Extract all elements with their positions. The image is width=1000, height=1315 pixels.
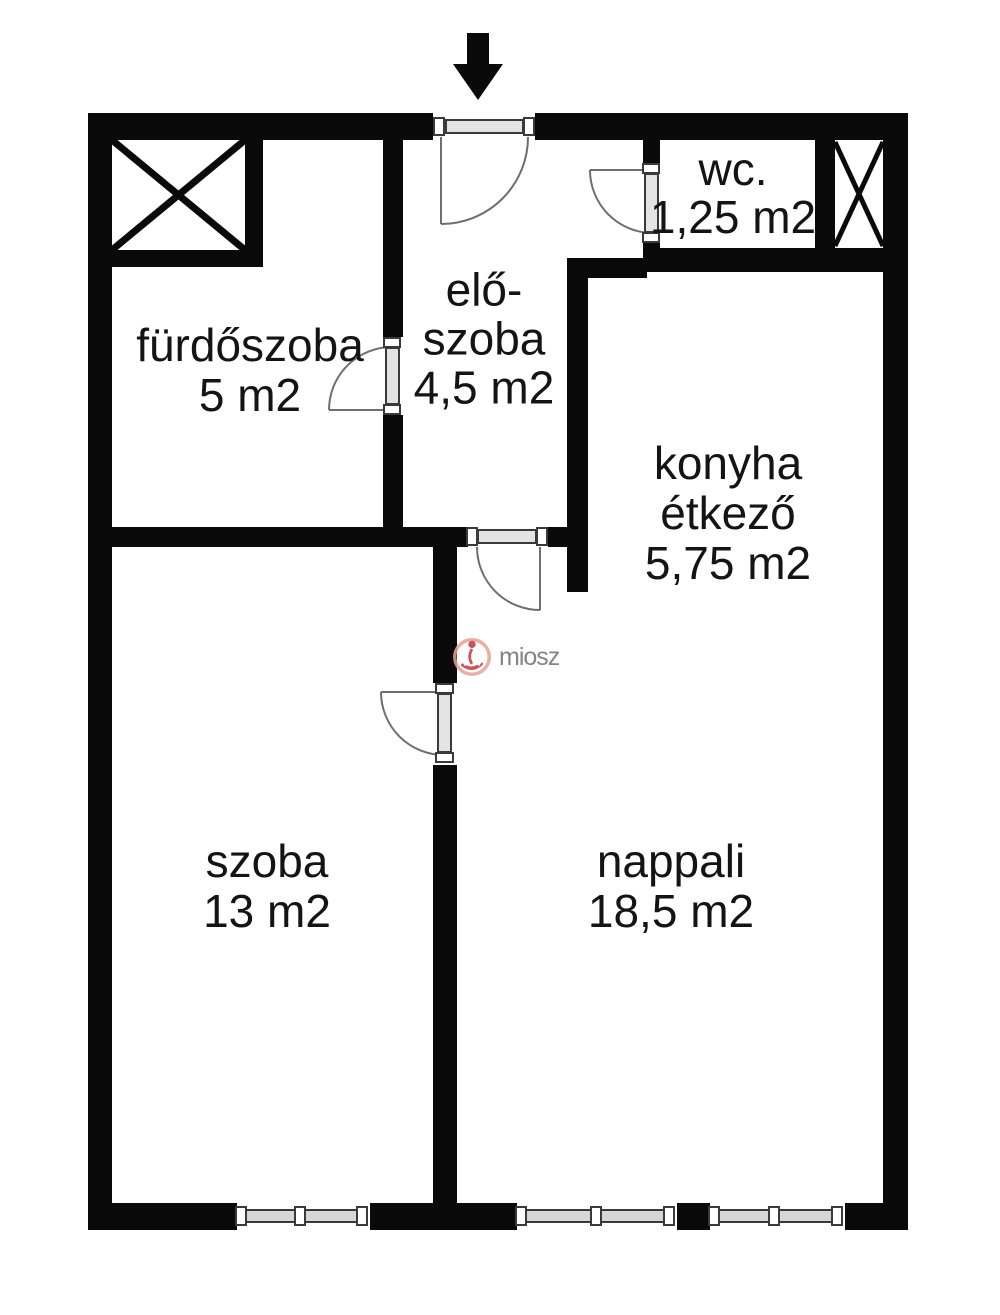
room-label-wc: wc. 1,25 m2	[650, 145, 816, 241]
window-cap	[356, 1206, 368, 1226]
threshold-cap	[433, 117, 445, 136]
threshold-cap	[383, 337, 401, 348]
room-area: 18,5 m2	[588, 886, 754, 936]
room-name: fürdőszoba	[136, 320, 364, 370]
threshold-cap	[435, 683, 454, 694]
threshold-cap	[536, 527, 548, 546]
room-name: szoba	[203, 836, 331, 886]
room-label-furdoszoba: fürdőszoba 5 m2	[136, 320, 364, 420]
room-name: konyha	[645, 438, 811, 488]
entrance-door-swing	[441, 137, 528, 224]
room-area: 1,25 m2	[650, 193, 816, 241]
room-label-eloszoba: elő- szoba 4,5 m2	[414, 266, 555, 413]
window-cap	[235, 1206, 247, 1226]
threshold-cap	[435, 752, 454, 763]
threshold-cap	[383, 404, 401, 415]
room-area: 5 m2	[136, 370, 364, 420]
room-name: elő-	[414, 266, 555, 315]
shaft-x-icon-left	[112, 140, 245, 250]
threshold-cap	[466, 527, 478, 546]
shaft-x-icon-right	[835, 142, 883, 246]
entrance-door-threshold	[445, 119, 524, 134]
entrance-arrow-icon	[453, 33, 503, 100]
living-door-threshold	[477, 529, 537, 544]
watermark: miosz	[449, 634, 559, 680]
bathroom-door-threshold	[385, 347, 400, 405]
room-area: 13 m2	[203, 886, 331, 936]
window-mullion	[294, 1206, 306, 1226]
room-label-nappali: nappali 18,5 m2	[588, 836, 754, 936]
room-label-konyha: konyha étkező 5,75 m2	[645, 438, 811, 588]
window-cap	[831, 1206, 843, 1226]
watermark-logo-icon	[449, 634, 495, 680]
window-mullion	[768, 1206, 780, 1226]
bedroom-door-threshold	[437, 693, 452, 753]
floor-plan: fürdőszoba 5 m2 elő- szoba 4,5 m2 wc. 1,…	[0, 0, 1000, 1315]
room-name: étkező	[645, 488, 811, 538]
window-cap	[515, 1206, 527, 1226]
room-name: wc.	[650, 145, 816, 193]
window-cap	[663, 1206, 675, 1226]
window-cap	[708, 1206, 720, 1226]
threshold-cap	[523, 117, 535, 136]
living-door-swing	[477, 547, 540, 610]
room-name: szoba	[414, 315, 555, 364]
watermark-text: miosz	[499, 643, 559, 672]
bedroom-door-swing	[381, 692, 444, 755]
window-mullion	[590, 1206, 602, 1226]
room-area: 5,75 m2	[645, 538, 811, 588]
room-label-szoba: szoba 13 m2	[203, 836, 331, 936]
room-name: nappali	[588, 836, 754, 886]
room-area: 4,5 m2	[414, 364, 555, 413]
